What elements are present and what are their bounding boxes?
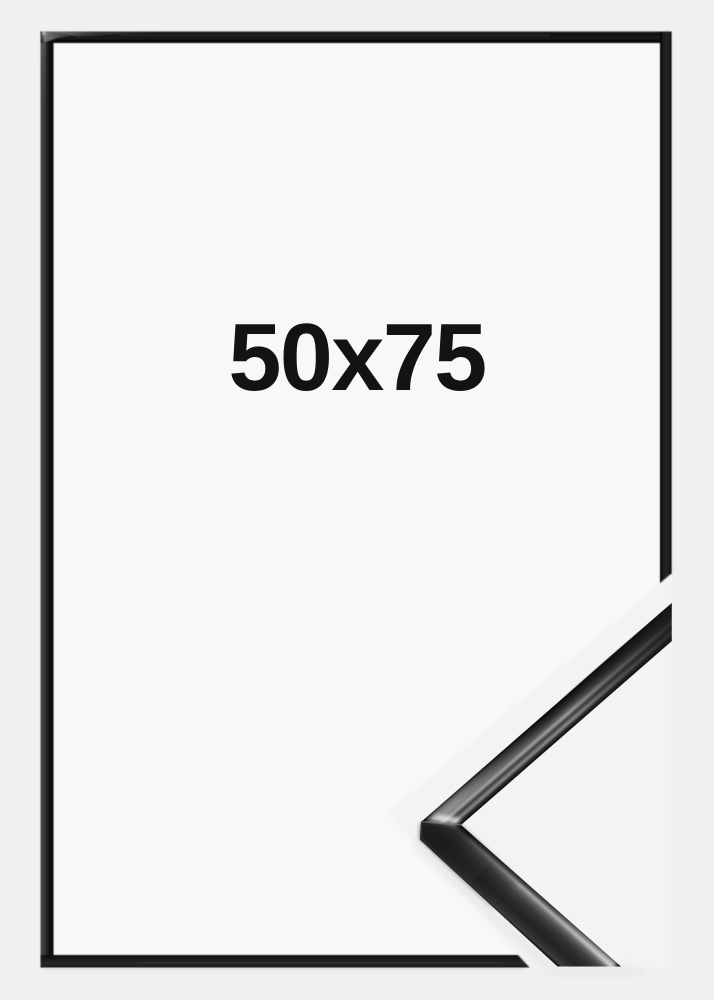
svg-text:50x75: 50x75 [228,305,485,411]
